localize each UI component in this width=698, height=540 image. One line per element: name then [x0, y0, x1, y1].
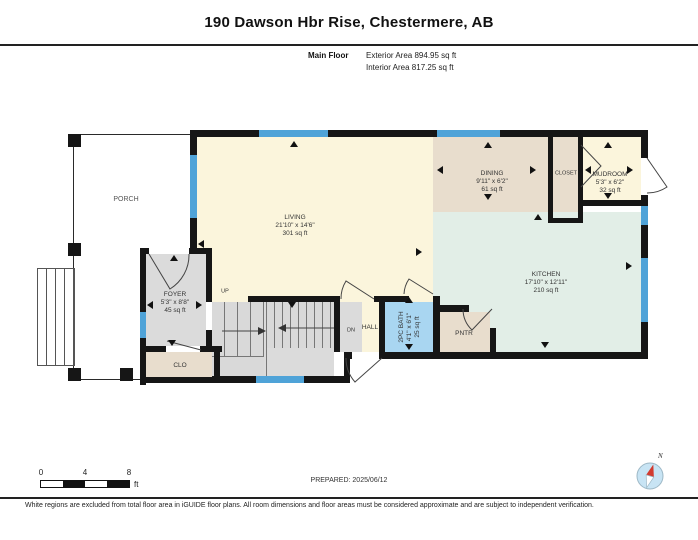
window-right-upper: [641, 205, 648, 225]
footer-disclaimer: White regions are excluded from total fl…: [25, 502, 685, 509]
label-mudroom: MUDROOM 5'3" x 6'2" 32 sq ft: [592, 171, 627, 195]
north-label: N: [658, 452, 663, 460]
window-living-left: [190, 155, 197, 218]
label-pantry: PNTR: [455, 330, 473, 338]
dim-arrow-down: [541, 342, 549, 348]
wall-bath-left: [379, 296, 385, 359]
dim-arrow-up: [534, 214, 542, 220]
dim-arrow-down: [168, 340, 176, 346]
label-foyer: FOYER 5'3" x 8'8" 45 sq ft: [161, 291, 189, 315]
floor-plan-page: 190 Dawson Hbr Rise, Chestermere, AB Mai…: [0, 0, 698, 540]
dim-arrow-up: [604, 142, 612, 148]
interior-area: Interior Area 817.25 sq ft: [366, 63, 454, 72]
dim-arrow-right: [196, 301, 202, 309]
window-top-dining: [437, 130, 500, 137]
porch-post: [68, 134, 81, 147]
wall-closet-bottom: [548, 218, 583, 223]
wall-bottom: [348, 352, 352, 359]
scale-tick-4: 4: [83, 468, 87, 477]
wall-closet-right: [578, 136, 583, 223]
dim-arrow-down: [405, 344, 413, 350]
footer-divider: [0, 497, 698, 499]
window-top-living: [259, 130, 328, 137]
dim-arrow-left: [147, 301, 153, 309]
wall-clo-bottom: [140, 377, 222, 383]
mudroom-door-arc: [647, 158, 667, 193]
wall-clo-top: [140, 346, 166, 352]
label-bath: 2PC BATH 4'1" x 6'1" 25 sq ft: [398, 311, 422, 342]
wall-foyer-top: [189, 248, 206, 254]
wall-foyer-right: [206, 248, 212, 302]
scale-tick-8: 8: [127, 468, 131, 477]
stairs-divider: [266, 302, 267, 376]
rear-entry-door-arc: [346, 358, 382, 382]
floor-label: Main Floor: [308, 51, 348, 60]
label-clo: CLO: [173, 362, 186, 370]
porch-edge-top: [73, 134, 191, 135]
dim-arrow-left: [437, 166, 443, 174]
header-divider: [0, 44, 698, 46]
label-dn: DN: [347, 328, 355, 335]
stairs-dn-treads: [267, 302, 338, 348]
compass-icon: [634, 460, 666, 492]
dim-arrow-up: [484, 142, 492, 148]
wall-bottom: [382, 352, 648, 359]
dim-arrow-down: [288, 302, 296, 308]
dim-arrow-up: [405, 297, 413, 303]
label-kitchen: KITCHEN 17'10" x 12'11" 210 sq ft: [525, 271, 567, 295]
label-up: UP: [221, 289, 229, 296]
label-closet: CLOSET: [555, 171, 577, 178]
prepared-date: PREPARED: 2025/06/12: [0, 477, 698, 484]
wall-pantry-right: [490, 328, 496, 354]
dim-arrow-down: [484, 194, 492, 200]
wall-closet-left: [548, 136, 553, 223]
dim-arrow-up: [290, 141, 298, 147]
dim-arrow-left: [198, 240, 204, 248]
label-porch: PORCH: [113, 196, 138, 204]
window-right-kitchen: [641, 258, 648, 322]
dim-arrow-right: [626, 262, 632, 270]
wall-mudroom-bottom: [578, 200, 648, 206]
wall-right: [641, 130, 648, 158]
porch-post: [120, 368, 133, 381]
page-title: 190 Dawson Hbr Rise, Chestermere, AB: [0, 14, 698, 31]
label-dining: DINING 9'11" x 6'2" 61 sq ft: [476, 170, 508, 194]
label-living: LIVING 21'10" x 14'6" 301 sq ft: [275, 214, 314, 238]
dim-arrow-right: [416, 248, 422, 256]
porch-post: [68, 243, 81, 256]
dim-arrow-right: [627, 166, 633, 174]
exterior-area: Exterior Area 894.95 sq ft: [366, 51, 456, 60]
dim-arrow-up: [170, 255, 178, 261]
dim-arrow-right: [530, 166, 536, 174]
dim-arrow-left: [585, 166, 591, 174]
window-foyer-left: [140, 312, 146, 338]
label-hall: HALL: [362, 324, 378, 332]
porch-steps: [37, 268, 75, 366]
window-stairs-bottom: [256, 376, 304, 383]
scale-tick-0: 0: [39, 468, 43, 477]
wall-pantry-top: [433, 305, 469, 312]
wall-stairwell-right: [334, 302, 340, 352]
porch-post: [68, 368, 81, 381]
